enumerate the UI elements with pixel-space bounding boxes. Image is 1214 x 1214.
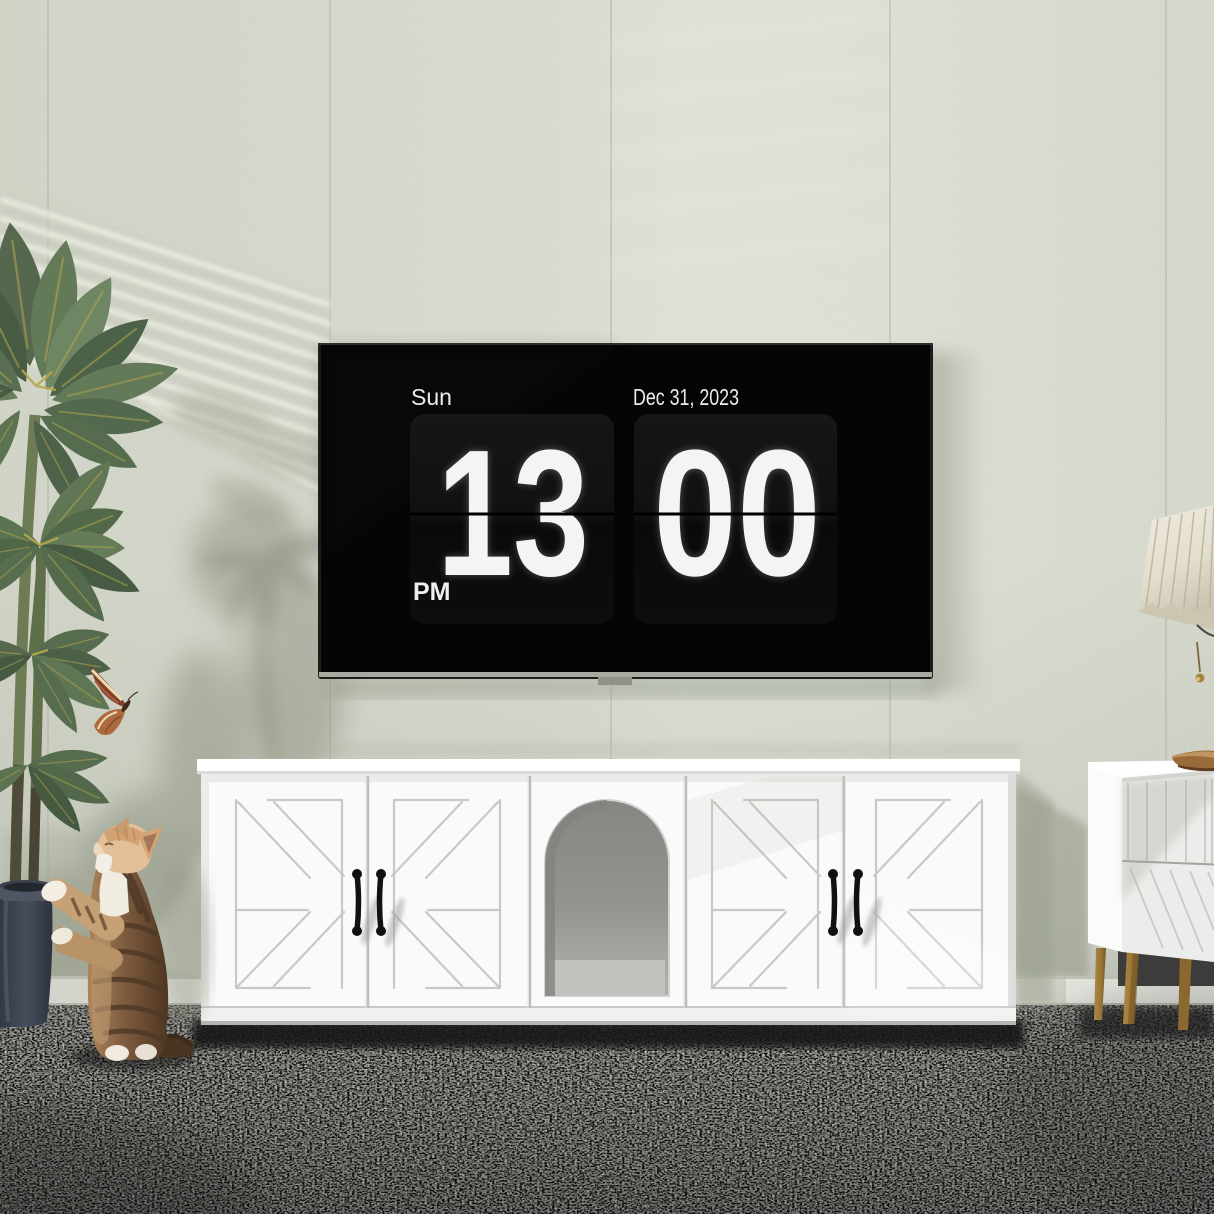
svg-text:Dec 31, 2023: Dec 31, 2023 xyxy=(633,384,739,410)
svg-text:Sun: Sun xyxy=(411,384,452,410)
svg-text:PM: PM xyxy=(413,578,451,606)
